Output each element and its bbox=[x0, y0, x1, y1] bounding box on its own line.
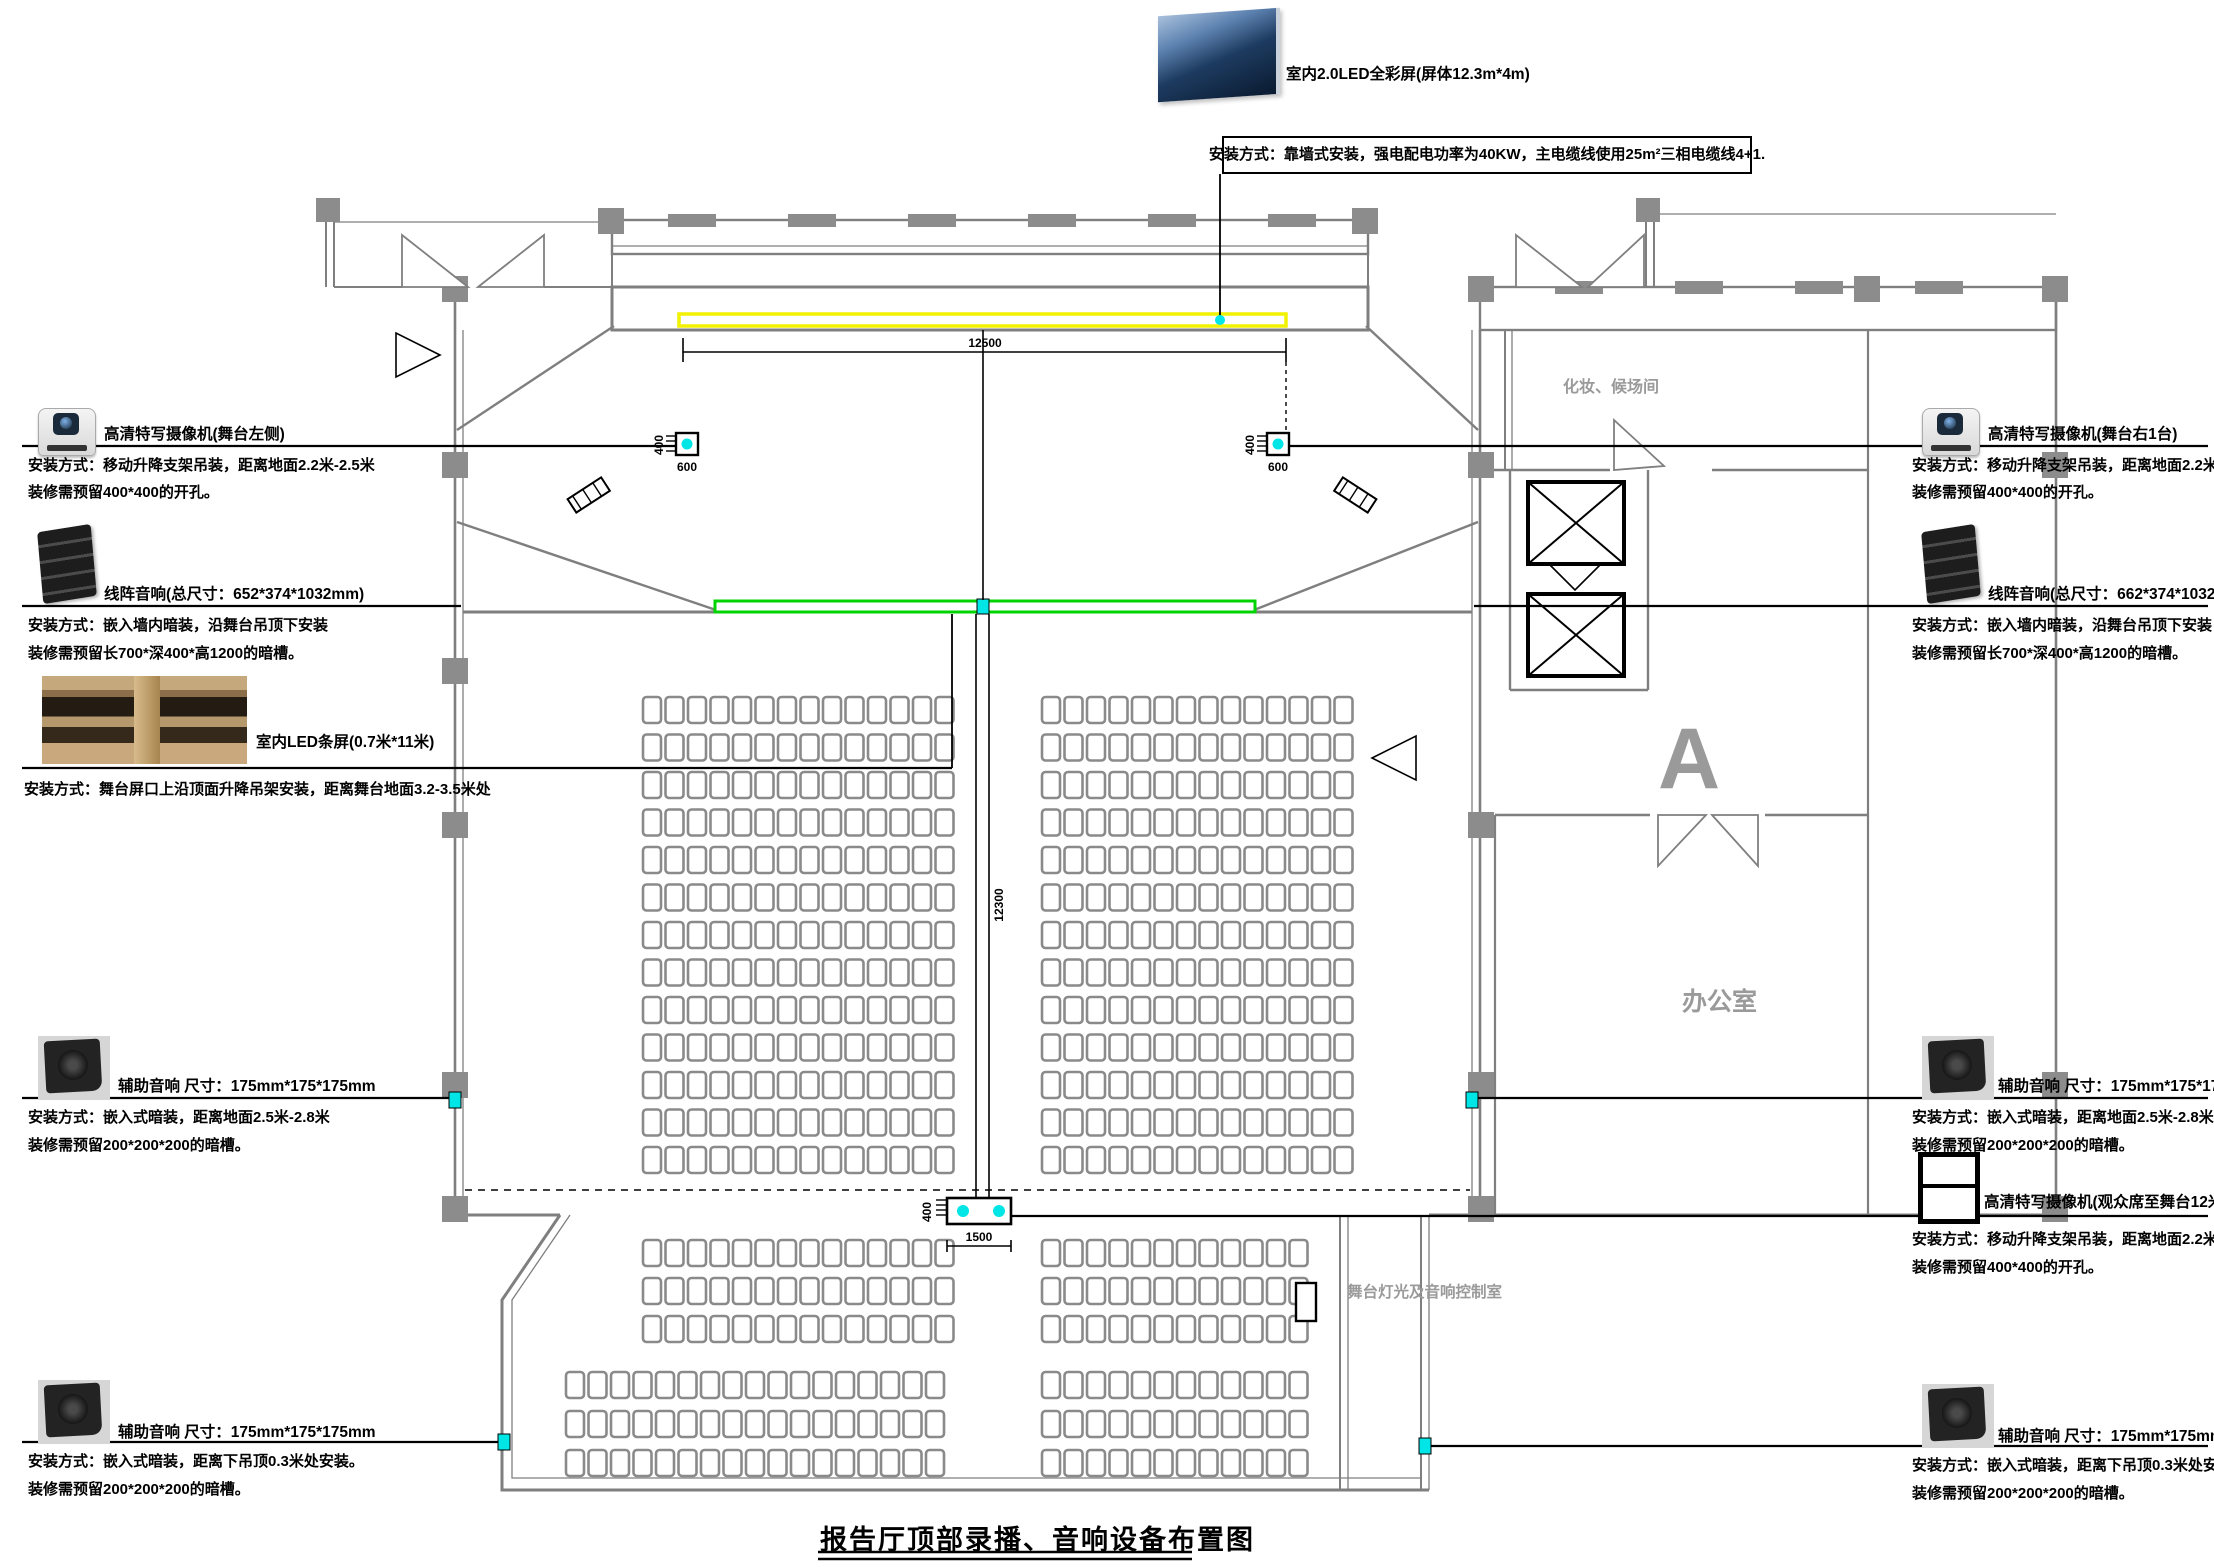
seat bbox=[913, 1072, 931, 1098]
seat bbox=[756, 847, 774, 873]
seat bbox=[566, 1411, 584, 1437]
seat bbox=[1065, 1072, 1083, 1098]
seat bbox=[1065, 1316, 1083, 1342]
annotation-line: 安装方式：嵌入式暗装，距离下吊顶0.3米处安装 bbox=[1912, 1452, 2214, 1479]
seat bbox=[1290, 810, 1308, 836]
seat bbox=[778, 1316, 796, 1342]
seat bbox=[1065, 997, 1083, 1023]
seat bbox=[1222, 1072, 1240, 1098]
seat bbox=[1087, 885, 1105, 911]
seat bbox=[936, 997, 954, 1023]
seat bbox=[891, 1316, 909, 1342]
seat bbox=[643, 847, 661, 873]
seat bbox=[1290, 1072, 1308, 1098]
seat bbox=[756, 1147, 774, 1173]
seat bbox=[1042, 1372, 1060, 1398]
seat bbox=[1245, 735, 1263, 761]
seat bbox=[1065, 1035, 1083, 1061]
seat bbox=[926, 1372, 944, 1398]
seat bbox=[1200, 1278, 1218, 1304]
seat bbox=[666, 922, 684, 948]
seat bbox=[1335, 810, 1353, 836]
seat bbox=[859, 1411, 877, 1437]
seat bbox=[1200, 847, 1218, 873]
seat bbox=[1155, 1035, 1173, 1061]
seat bbox=[666, 1316, 684, 1342]
seat bbox=[1110, 697, 1128, 723]
seat bbox=[769, 1411, 787, 1437]
seat bbox=[936, 885, 954, 911]
led-strip-feed-point bbox=[977, 599, 989, 614]
seat bbox=[1065, 847, 1083, 873]
seat bbox=[801, 1110, 819, 1136]
annotation-title-aux-bottom-left: 辅助音响 尺寸：175mm*175*175mm bbox=[118, 1420, 376, 1442]
section-arrow bbox=[1372, 736, 1416, 780]
seat bbox=[1065, 1450, 1083, 1476]
annotation-title-led-strip: 室内LED条屏(0.7米*11米) bbox=[256, 730, 434, 752]
seat bbox=[1335, 885, 1353, 911]
seat bbox=[1290, 1411, 1308, 1437]
seat bbox=[823, 1240, 841, 1266]
seat bbox=[1222, 1240, 1240, 1266]
seat bbox=[1200, 1110, 1218, 1136]
seat bbox=[801, 1147, 819, 1173]
seat bbox=[846, 772, 864, 798]
seat bbox=[756, 997, 774, 1023]
seat bbox=[711, 810, 729, 836]
seat bbox=[1222, 697, 1240, 723]
seat bbox=[1087, 847, 1105, 873]
seat bbox=[801, 1316, 819, 1342]
main-led-screen-bar bbox=[679, 314, 1286, 326]
seat bbox=[913, 697, 931, 723]
section-markers bbox=[396, 333, 1600, 780]
seat bbox=[1087, 922, 1105, 948]
elevator-shafts bbox=[1528, 482, 1624, 676]
seat bbox=[1110, 997, 1128, 1023]
seat bbox=[1245, 1450, 1263, 1476]
seat bbox=[814, 1372, 832, 1398]
seat bbox=[711, 1110, 729, 1136]
seat bbox=[756, 810, 774, 836]
seat bbox=[814, 1450, 832, 1476]
seat bbox=[733, 1072, 751, 1098]
seat bbox=[868, 1316, 886, 1342]
seat bbox=[1087, 1372, 1105, 1398]
seat bbox=[868, 997, 886, 1023]
seat bbox=[589, 1450, 607, 1476]
camera-right-symbol: 400 600 bbox=[1243, 433, 1289, 474]
annotation-line: 装修需预留400*400的开孔。 bbox=[1912, 479, 2103, 506]
seat bbox=[1132, 1372, 1150, 1398]
stair-zigzag bbox=[1550, 565, 1600, 590]
seat bbox=[1245, 1110, 1263, 1136]
seat bbox=[643, 772, 661, 798]
seat bbox=[1110, 810, 1128, 836]
seat bbox=[1177, 1316, 1195, 1342]
seat bbox=[1222, 997, 1240, 1023]
seat bbox=[1312, 1035, 1330, 1061]
seat bbox=[1222, 847, 1240, 873]
seat bbox=[936, 1110, 954, 1136]
seat bbox=[1110, 1240, 1128, 1266]
seat bbox=[1042, 922, 1060, 948]
seat bbox=[1155, 847, 1173, 873]
seat bbox=[656, 1372, 674, 1398]
seat bbox=[1132, 1316, 1150, 1342]
seat bbox=[836, 1450, 854, 1476]
seat bbox=[611, 1411, 629, 1437]
seat bbox=[733, 735, 751, 761]
seat bbox=[868, 960, 886, 986]
seat bbox=[701, 1411, 719, 1437]
seat bbox=[756, 1316, 774, 1342]
seat bbox=[1042, 1072, 1060, 1098]
seat bbox=[1245, 1278, 1263, 1304]
seat bbox=[1177, 960, 1195, 986]
seat bbox=[891, 1147, 909, 1173]
dim-1500: 1500 bbox=[966, 1230, 993, 1244]
seat bbox=[1065, 772, 1083, 798]
annotation-line: 安装方式：移动升降支架吊装，距离地面2.2米-2.5米 bbox=[1912, 1226, 2214, 1253]
camera-audience-symbol: 400 1500 bbox=[920, 1198, 1011, 1252]
seat bbox=[1200, 1240, 1218, 1266]
seat bbox=[1222, 960, 1240, 986]
seat bbox=[1087, 697, 1105, 723]
seat bbox=[1312, 1110, 1330, 1136]
seat bbox=[913, 772, 931, 798]
seat bbox=[688, 1035, 706, 1061]
seat bbox=[1177, 922, 1195, 948]
seat bbox=[1290, 1147, 1308, 1173]
seat bbox=[1087, 1278, 1105, 1304]
seat bbox=[1267, 810, 1285, 836]
seat bbox=[711, 997, 729, 1023]
seat bbox=[936, 1147, 954, 1173]
seat bbox=[656, 1411, 674, 1437]
seat bbox=[778, 922, 796, 948]
seat bbox=[1065, 697, 1083, 723]
led-strip-photo bbox=[42, 676, 247, 764]
seat bbox=[1200, 1372, 1218, 1398]
seat bbox=[1267, 960, 1285, 986]
seat bbox=[1222, 1035, 1240, 1061]
seat bbox=[1200, 1450, 1218, 1476]
seat bbox=[1177, 810, 1195, 836]
seat bbox=[1155, 997, 1173, 1023]
seat bbox=[1267, 847, 1285, 873]
seat bbox=[1267, 1240, 1285, 1266]
screen-feed-point bbox=[1215, 315, 1225, 325]
seat bbox=[1312, 922, 1330, 948]
seat bbox=[836, 1372, 854, 1398]
seat bbox=[778, 1072, 796, 1098]
seat bbox=[791, 1450, 809, 1476]
seat bbox=[1335, 922, 1353, 948]
seat bbox=[733, 1110, 751, 1136]
seat bbox=[1335, 1072, 1353, 1098]
seat bbox=[666, 810, 684, 836]
seat bbox=[823, 1278, 841, 1304]
door-leaf bbox=[1658, 815, 1706, 866]
seat bbox=[666, 1110, 684, 1136]
door-leaf bbox=[1588, 235, 1644, 287]
seat bbox=[859, 1450, 877, 1476]
seat bbox=[1312, 697, 1330, 723]
seat bbox=[936, 772, 954, 798]
seat bbox=[868, 697, 886, 723]
seat bbox=[1222, 1110, 1240, 1136]
seat bbox=[1312, 1147, 1330, 1173]
annotation-title-cam-audience: 高清特写摄像机(观众席至舞台12米处2台) bbox=[1984, 1190, 2214, 1212]
seat bbox=[656, 1450, 674, 1476]
seat bbox=[1267, 697, 1285, 723]
door-leaf bbox=[478, 235, 544, 287]
seat bbox=[801, 810, 819, 836]
seat bbox=[778, 810, 796, 836]
seat bbox=[823, 810, 841, 836]
seat bbox=[746, 1372, 764, 1398]
seat bbox=[643, 1278, 661, 1304]
seat bbox=[891, 1278, 909, 1304]
seat bbox=[1177, 997, 1195, 1023]
seat bbox=[791, 1411, 809, 1437]
seat bbox=[1245, 772, 1263, 798]
seat bbox=[589, 1372, 607, 1398]
stage-top-band bbox=[612, 220, 1368, 254]
ptz-camera-icon bbox=[1922, 408, 1980, 456]
seat bbox=[1245, 810, 1263, 836]
stage-splay-left-upper bbox=[457, 326, 614, 430]
seat bbox=[823, 1110, 841, 1136]
seat bbox=[1155, 1147, 1173, 1173]
seat bbox=[1200, 1072, 1218, 1098]
seat bbox=[1155, 810, 1173, 836]
seat bbox=[891, 810, 909, 836]
seat bbox=[1222, 1450, 1240, 1476]
seat bbox=[1132, 810, 1150, 836]
seat bbox=[666, 885, 684, 911]
seat bbox=[846, 1035, 864, 1061]
seat bbox=[846, 1240, 864, 1266]
seat bbox=[801, 1240, 819, 1266]
seat bbox=[688, 1240, 706, 1266]
seat bbox=[1335, 1035, 1353, 1061]
seat bbox=[1335, 697, 1353, 723]
seat bbox=[846, 697, 864, 723]
seat bbox=[756, 1240, 774, 1266]
annotation-line: 装修需预留400*400的开孔。 bbox=[1912, 1254, 2103, 1281]
seat bbox=[1200, 697, 1218, 723]
seat bbox=[846, 810, 864, 836]
seat bbox=[688, 772, 706, 798]
seat bbox=[891, 1035, 909, 1061]
seat bbox=[1267, 1278, 1285, 1304]
seat bbox=[868, 735, 886, 761]
seat bbox=[1267, 1316, 1285, 1342]
seat bbox=[936, 735, 954, 761]
seat bbox=[711, 885, 729, 911]
annotation-line: 安装方式：嵌入式暗装，距离地面2.5米-2.8米 bbox=[1912, 1104, 2214, 1131]
annotation-title-aux-mid-left: 辅助音响 尺寸：175mm*175*175mm bbox=[118, 1074, 376, 1096]
seat bbox=[891, 1240, 909, 1266]
seat bbox=[1245, 847, 1263, 873]
seat bbox=[936, 960, 954, 986]
seat bbox=[801, 997, 819, 1023]
seat bbox=[711, 1035, 729, 1061]
seat bbox=[1087, 1411, 1105, 1437]
seat bbox=[778, 1278, 796, 1304]
seat bbox=[823, 997, 841, 1023]
seat bbox=[823, 772, 841, 798]
seat bbox=[688, 697, 706, 723]
section-letter-A: A bbox=[1658, 711, 1720, 807]
seat bbox=[1177, 1110, 1195, 1136]
aux-marker-mid-left bbox=[449, 1092, 461, 1108]
seat bbox=[724, 1411, 742, 1437]
seat bbox=[1155, 1072, 1173, 1098]
seat bbox=[1200, 1147, 1218, 1173]
seat bbox=[1267, 997, 1285, 1023]
seat bbox=[823, 885, 841, 911]
seat bbox=[1110, 960, 1128, 986]
seat bbox=[801, 697, 819, 723]
seat bbox=[1065, 1110, 1083, 1136]
seat bbox=[688, 922, 706, 948]
annotation-line: 装修需预留200*200*200的暗槽。 bbox=[1912, 1480, 2134, 1507]
seat bbox=[891, 847, 909, 873]
seat bbox=[756, 1278, 774, 1304]
seat bbox=[846, 1110, 864, 1136]
seat bbox=[1222, 1411, 1240, 1437]
seat bbox=[711, 1316, 729, 1342]
seat bbox=[1155, 1372, 1173, 1398]
seat bbox=[1290, 1110, 1308, 1136]
seat bbox=[711, 1278, 729, 1304]
annotation-title-aux-bottom-right: 辅助音响 尺寸：175mm*175mm bbox=[1998, 1424, 2214, 1446]
annotation-line: 装修需预留400*400的开孔。 bbox=[28, 479, 219, 506]
seat bbox=[643, 697, 661, 723]
seat bbox=[688, 810, 706, 836]
seat bbox=[724, 1450, 742, 1476]
seat bbox=[1290, 1450, 1308, 1476]
seat bbox=[589, 1411, 607, 1437]
aux-speaker-icon bbox=[1922, 1036, 1994, 1100]
seat bbox=[891, 1072, 909, 1098]
seat bbox=[666, 1147, 684, 1173]
seat bbox=[1245, 960, 1263, 986]
seat bbox=[1267, 922, 1285, 948]
seat bbox=[1177, 772, 1195, 798]
seat bbox=[868, 1035, 886, 1061]
seat bbox=[1155, 1450, 1173, 1476]
camera-frame-icon bbox=[1918, 1152, 1980, 1224]
seat bbox=[823, 847, 841, 873]
seat bbox=[1200, 960, 1218, 986]
seat bbox=[701, 1372, 719, 1398]
seat bbox=[566, 1372, 584, 1398]
seat bbox=[1132, 772, 1150, 798]
led-screen-photo bbox=[1158, 12, 1280, 98]
seat bbox=[913, 1278, 931, 1304]
seat bbox=[1267, 1110, 1285, 1136]
dim-400-left: 400 bbox=[652, 435, 666, 455]
led-screen-label: 室内2.0LED全彩屏(屏体12.3m*4m) bbox=[1286, 62, 1530, 84]
seat bbox=[1042, 772, 1060, 798]
seat bbox=[1267, 1372, 1285, 1398]
seat bbox=[936, 1316, 954, 1342]
seat bbox=[1110, 1450, 1128, 1476]
seat bbox=[1290, 735, 1308, 761]
seat bbox=[1312, 735, 1330, 761]
seat bbox=[769, 1372, 787, 1398]
annotation-title-cam-left: 高清特写摄像机(舞台左侧) bbox=[104, 422, 285, 444]
seat bbox=[1087, 1450, 1105, 1476]
seat bbox=[733, 1035, 751, 1061]
seat bbox=[1290, 847, 1308, 873]
seat bbox=[1065, 735, 1083, 761]
seat bbox=[1222, 1278, 1240, 1304]
seat bbox=[1245, 1411, 1263, 1437]
seat bbox=[936, 1072, 954, 1098]
seat bbox=[1290, 885, 1308, 911]
seat bbox=[1177, 735, 1195, 761]
seat bbox=[1042, 847, 1060, 873]
seat bbox=[666, 997, 684, 1023]
seat bbox=[1132, 847, 1150, 873]
seat bbox=[1087, 960, 1105, 986]
seat bbox=[1132, 1450, 1150, 1476]
seat bbox=[1110, 922, 1128, 948]
seat bbox=[1065, 1411, 1083, 1437]
seat bbox=[1132, 1110, 1150, 1136]
aux-speaker-icon bbox=[38, 1036, 110, 1100]
seat bbox=[666, 772, 684, 798]
seat bbox=[1312, 772, 1330, 798]
line-array-left-symbol bbox=[568, 477, 610, 512]
seat bbox=[1312, 1072, 1330, 1098]
seat bbox=[1110, 735, 1128, 761]
seat bbox=[936, 847, 954, 873]
seat bbox=[1267, 772, 1285, 798]
seat bbox=[778, 772, 796, 798]
seat bbox=[881, 1372, 899, 1398]
ptz-camera-icon bbox=[38, 408, 96, 456]
seat bbox=[733, 1240, 751, 1266]
annotation-title-cam-right: 高清特写摄像机(舞台右1台) bbox=[1988, 422, 2177, 444]
seat bbox=[711, 1240, 729, 1266]
seat bbox=[1335, 997, 1353, 1023]
seat bbox=[1065, 922, 1083, 948]
seat bbox=[1087, 1110, 1105, 1136]
seat bbox=[1222, 810, 1240, 836]
seat bbox=[1222, 1316, 1240, 1342]
seat bbox=[711, 922, 729, 948]
seat bbox=[643, 997, 661, 1023]
seat bbox=[1042, 960, 1060, 986]
seat bbox=[688, 1072, 706, 1098]
seat bbox=[1155, 1278, 1173, 1304]
seat bbox=[1132, 885, 1150, 911]
seat bbox=[1087, 1072, 1105, 1098]
seat bbox=[634, 1411, 652, 1437]
seat bbox=[778, 735, 796, 761]
aux-speaker-icon bbox=[38, 1380, 110, 1444]
seat bbox=[936, 1035, 954, 1061]
seat bbox=[913, 885, 931, 911]
seat bbox=[801, 1278, 819, 1304]
seat bbox=[846, 1278, 864, 1304]
